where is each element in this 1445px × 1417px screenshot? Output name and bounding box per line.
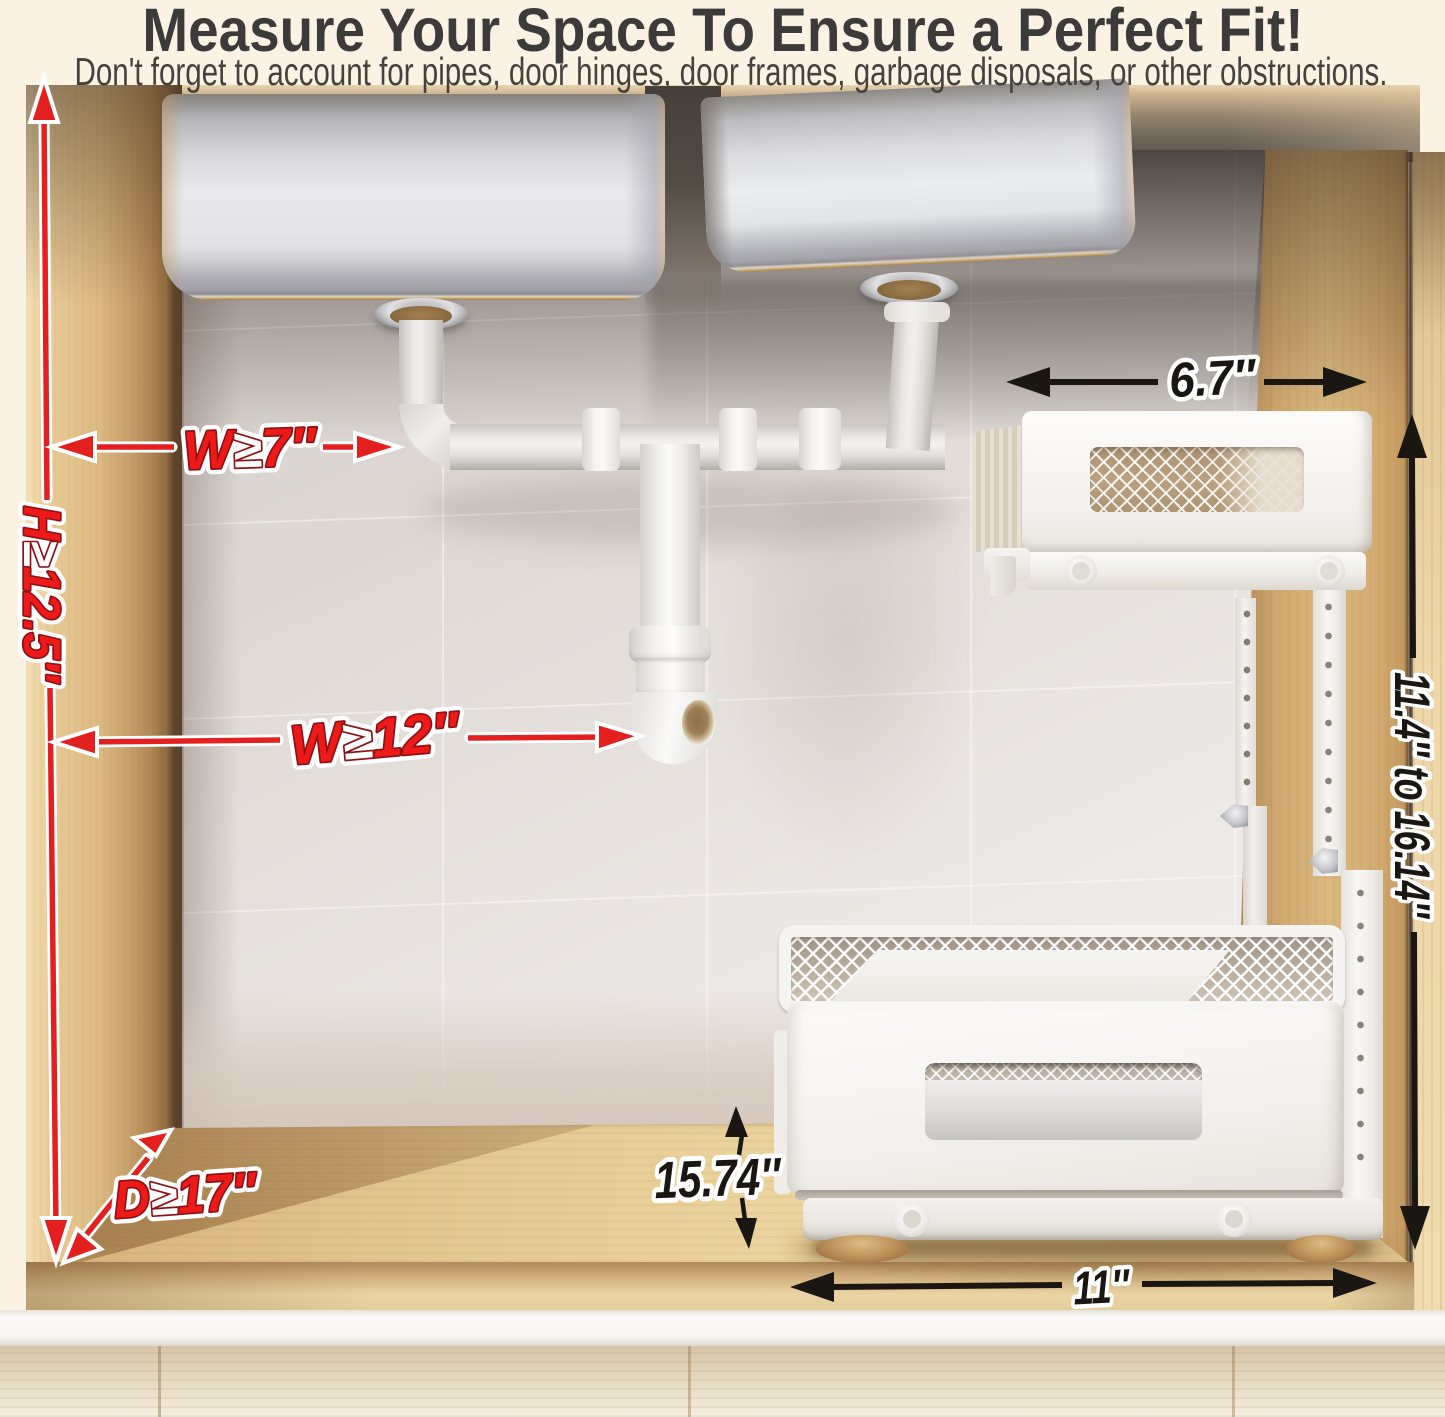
svg-text:11.4″ to 16.14″: 11.4″ to 16.14″	[1384, 672, 1440, 919]
svg-text:11″: 11″	[1072, 1258, 1133, 1314]
svg-text:D≥17″: D≥17″	[112, 1161, 260, 1229]
svg-text:15.74″: 15.74″	[653, 1148, 783, 1210]
svg-text:6.7″: 6.7″	[1168, 350, 1259, 409]
svg-text:H≥12.5″: H≥12.5″	[13, 506, 71, 684]
svg-text:W≥12″: W≥12″	[288, 699, 464, 776]
svg-text:W≥7″: W≥7″	[182, 417, 319, 482]
